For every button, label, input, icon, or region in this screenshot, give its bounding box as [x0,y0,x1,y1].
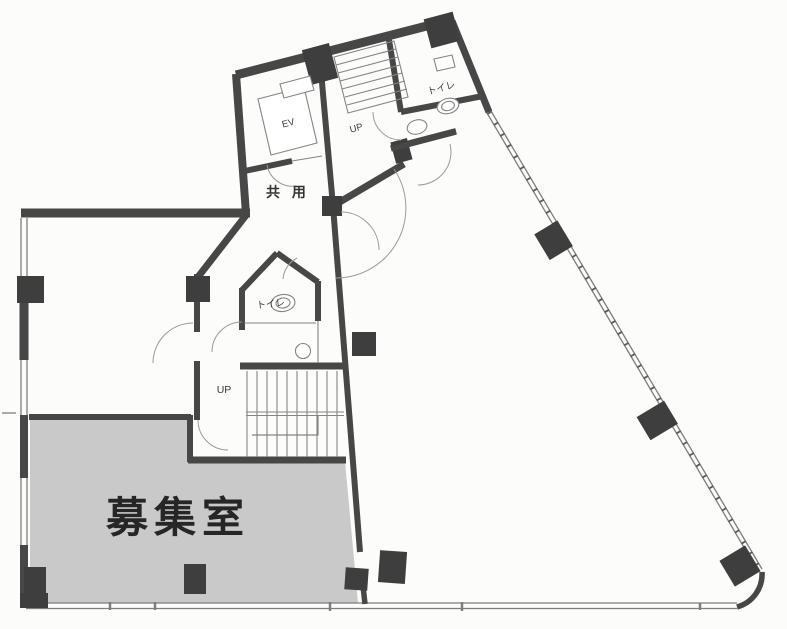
upper-stairs-up-label: UP [349,122,365,136]
common-area-label: 共 用 [266,184,310,200]
entry-funnel-wall [198,214,247,277]
main-staircase [246,371,344,457]
washroom-basin [406,118,429,137]
fixtures [244,55,461,359]
floor-plan-canvas: 募集室 共 用 EV UP トイレ トイレ UP [0,0,787,629]
upper-block-left-wall [236,74,246,214]
glass-wall-hatching [489,112,760,570]
mid-toilet-left-roof [242,253,277,290]
floor-plan-page: 募集室 共 用 EV UP トイレ トイレ UP [0,0,787,629]
elevator-bottom-wall [240,161,292,172]
main-stairs-up-label: UP [217,384,232,396]
top-edge-wall [236,19,454,75]
elevator-machine [280,76,314,98]
upper-toilet-label: トイレ [426,80,456,98]
vacant-room-label: 募集室 [105,494,250,541]
mid-basin [296,344,311,359]
upper-toilet-sink [434,55,455,71]
stairs-direction-line [252,415,318,435]
